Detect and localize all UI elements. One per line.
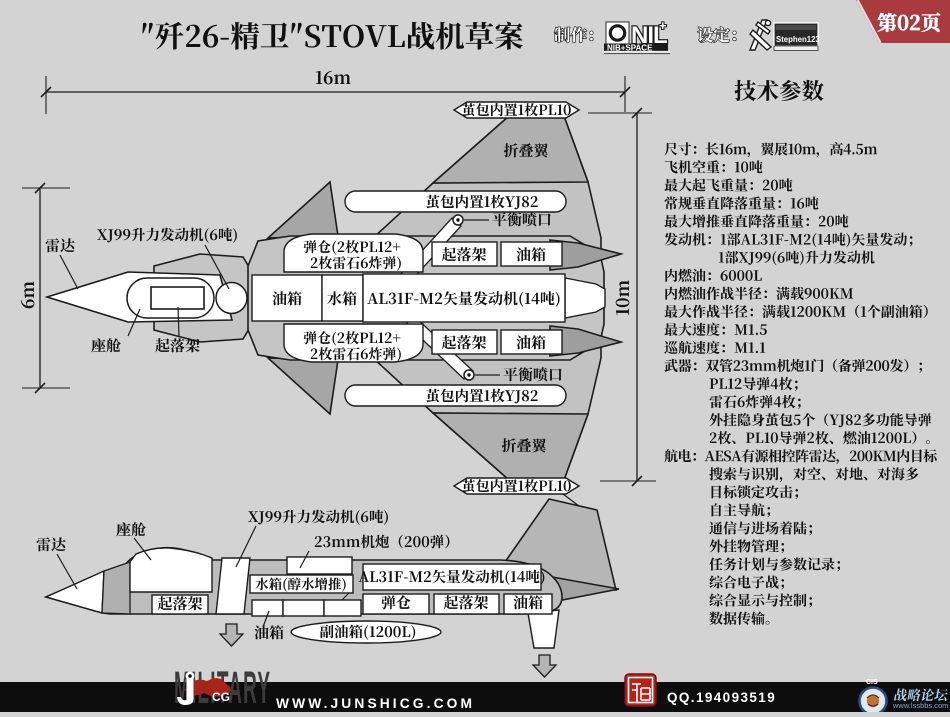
svg-text:Stephen123: Stephen123	[776, 35, 820, 44]
svg-text:CG: CG	[212, 690, 230, 704]
svg-text:www.lssbbs.com: www.lssbbs.com	[892, 701, 948, 710]
svg-text:CIS: CIS	[866, 679, 878, 686]
svg-text:+: +	[659, 18, 667, 33]
svg-text:WWW.JUNSHICG.COM: WWW.JUNSHICG.COM	[276, 696, 475, 711]
svg-text:QQ.194093519: QQ.194093519	[667, 690, 776, 705]
